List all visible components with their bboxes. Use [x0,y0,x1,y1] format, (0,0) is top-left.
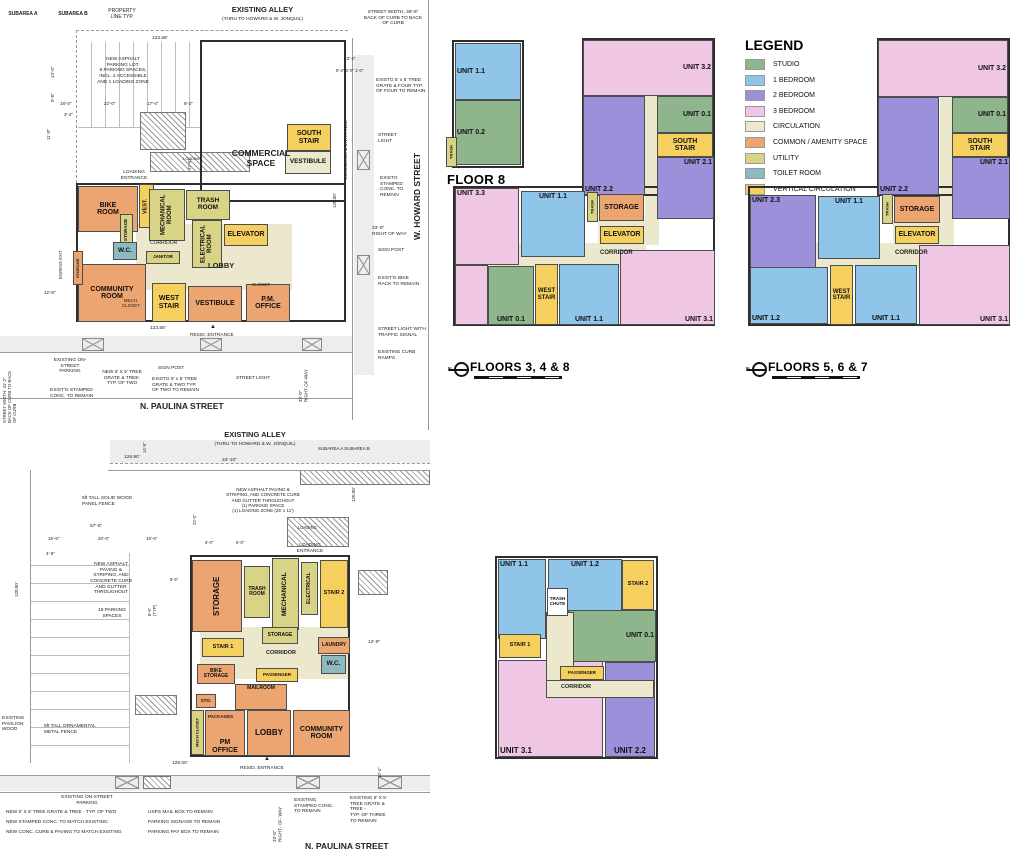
room-unit-0.1: UNIT 0.1 [952,97,1008,133]
note-existing-stamped-conc.-to-remain: EXISTING STAMPED CONC. TO REMAIN [294,798,346,815]
note-33-0-right-of-way: 33'-0" RIGHT OF WAY [372,226,418,237]
legend-label: COMMON / AMENITY SPACE [773,139,867,146]
note-subarea-a-subarea-b: SUBAREA A SUBAREA B [318,446,398,451]
note-area: ▲ [210,324,216,331]
room-unit-3.2: UNIT 3.2 [878,40,1008,97]
note-commercial-space: COMMERCIAL SPACE [230,148,292,168]
note-existing-5-x-5-tree-grate-tree-t: EXISTING 5' X 5' TREE GRATE & TREE - TYP… [350,796,402,824]
room-bike-storage: BIKE STORAGE [197,664,235,684]
room-unit-1.1: UNIT 1.1 [455,43,521,100]
note-17-6: 17'-6" [188,150,193,170]
room-janitor: JANITOR [146,251,180,264]
site-plan-south-hatch [358,570,388,595]
site-plan-north-tree [82,338,104,351]
legend-label: STUDIO [773,61,799,68]
legend-label: TOILET ROOM [773,170,821,177]
note-3-2: 3'-2" [64,112,73,117]
legend-swatch-icon [745,75,765,86]
room-elevator: ELEVATOR [600,226,644,244]
room-south-stair: SOUTH STAIR [287,124,331,151]
room-lobby: LOBBY [247,710,291,756]
note-existg-5-x-5-tree-grate-four-typ: EXISTG 5' x 5' TREE GRATE & FOUR TYP. OF… [376,78,436,95]
site-plan-north-outline [200,40,346,202]
legend-label: 2 BEDROOM [773,92,815,99]
note-new-5-x-5-tree-grate-tree-typ.-o: NEW 5' X 5' TREE GRATE & TREE - TYP. OF … [6,810,134,816]
room-vestibule: VESTIBULE [188,286,242,322]
room-elevator: ELEVATOR [895,226,939,244]
room-trash-room: TRASH ROOM [186,190,230,220]
site-plan-south-tree [115,776,139,789]
plan-title-floor-8-partial: FLOOR 8 [447,172,505,187]
site-plan-north-tree [357,255,370,275]
note-subarea-a: SUBAREA A [2,12,44,18]
note-existing-alley: EXISTING ALLEY [200,431,310,440]
room-w.c.: W.C. [113,242,137,260]
site-plan-north-tree [200,338,222,351]
note-12-8: 12'-8" [44,290,55,295]
legend-label: 3 BEDROOM [773,108,815,115]
note-corridor: CORRIDOR [150,241,177,247]
note-9-0: 9'-0" [50,86,55,102]
note-20-0: 20'-0" [98,536,109,541]
note-existing-on-street-parking: EXISTING ON- STREET PARKING [48,358,92,375]
note-property-line-typ.: PROPERTY LINE TYP. [100,9,144,21]
room-w.c.: W.C. [321,655,346,674]
room-unit-1.1: UNIT 1.1 [498,559,546,639]
room-trash-room: TRASH ROOM [244,566,270,618]
note-thru-to-howard-w.-jonquil: (THRU TO HOWARD & W. JONQUIL) [190,442,320,448]
note-57-5: 57'-5" [90,524,102,530]
note-128.00: 128.00' [172,761,188,767]
note-4-5: 4'-5" [46,551,55,556]
room-storage: STORAGE [192,560,242,632]
note-n.-paulina-street: N. PAULINA STREET [305,841,425,851]
room-unit-2.2: UNIT 2.2 [605,662,655,757]
legend-label: 1 BEDROOM [773,77,815,84]
legend-swatch-icon [745,168,765,179]
room-stair-2: STAIR 2 [320,560,348,628]
legend-swatch-icon [745,137,765,148]
note-13-4: 13'-4" [344,56,355,61]
room-stair-1: STAIR 1 [499,634,541,658]
note-17-0: 17'-0" [147,101,158,106]
room-mechanical: MECHANICAL [272,558,299,630]
legend-label: CIRCULATION [773,123,820,130]
note-existing-alley: EXISTING ALLEY [210,6,315,15]
note-existing-on-street-parking: EXISTING ON-STREET PARKING [52,795,122,806]
note-new-asphalt-paving-striping-and-: NEW ASPHALT PAVING & STRIPING, AND CONCR… [222,487,304,513]
note-egress-exit: EGRESS EXIT [58,243,63,279]
site-plan-north-tree [357,150,370,170]
note-corridor: CORRIDOR [600,250,633,257]
note-12-4: 12'-4" [378,758,383,778]
site-plan-north-line [76,30,348,31]
note-sign-post: SIGN POST [158,366,184,372]
note-6-4-6-0-1-0: 6'-4" 6'-0" 1'-0" [336,69,394,74]
site-plan-north-hatch [140,112,186,150]
note-16-6: 16'-6" [146,536,157,541]
room-trash: TRASH [446,137,457,167]
room-unit-2.1: UNIT 2.1 [952,157,1010,219]
room-unit-1.2: UNIT 1.2 [750,267,828,324]
note-new-stamped-conc.-to-match-exist: NEW STAMPED CONC. TO MATCH EXISTING [6,820,128,826]
room-unit-0.1: UNIT 0.1 [657,96,713,133]
site-plan-north-fill [0,336,352,352]
room-unit-0.1: UNIT 0.1 [488,266,534,325]
room-west-stair: WEST STAIR [535,264,558,325]
note-parking-signage-to-remain: PARKING SIGNAGE TO REMAIN [148,820,240,826]
room-south-stair: SOUTH STAIR [657,133,713,157]
room-mechanical-room: MECHANICAL ROOM [149,189,185,241]
note-loading: LOADING [298,526,317,531]
note-mech.-closet: MECH. CLOSET [116,298,146,309]
note-n.-paulina-street: N. PAULINA STREET [140,401,258,411]
plan-title-floors-3-4-8: FLOORS 3, 4 & 8 [470,360,570,374]
room-unit-1.1: UNIT 1.1 [559,264,619,325]
note-120.00: 120.00' [332,186,337,208]
site-plan-south-tree [296,776,320,789]
site-plan-south-hatch [135,695,177,715]
note-33-0-right-of-way: 33'-0" RIGHT- OF- WAY [272,800,283,842]
note-6ft-tall-solid-wood-panel-fence: 6ft TALL SOLID WOOD PANEL FENCE [82,496,148,507]
note-exist-g-bike-rack-to-remain: EXIST'G BIKE RACK TO REMAIN [378,276,426,287]
site-plan-south-line [110,463,430,464]
room-unit-3.2: UNIT 3.2 [583,40,713,96]
room-unit-1.1: UNIT 1.1 [818,196,880,259]
room-storage: STORAGE [894,196,940,223]
room-stair-1: STAIR 1 [202,638,244,657]
floors-5-6-7-scalebar [772,376,860,379]
site-plan-south-line [0,775,430,776]
architectural-sheet: LEGEND STUDIO1 BEDROOM2 BEDROOM3 BEDROOM… [0,0,1024,859]
room-laundry: LAUNDRY [318,637,350,654]
site-plan-south-line [0,792,430,793]
legend-swatch-icon [745,59,765,70]
note-19-parking-spaces: 19 PARKING SPACES [92,608,132,619]
room-unit-3.1: UNIT 3.1 [620,250,715,325]
floors-3-4-8-scalebar [474,376,562,379]
site-plan-north-fill [354,55,374,375]
room-storage: STORAGE [73,251,83,285]
room-trash: TRASH [882,194,893,224]
note-loading-entrance: LOADING ENTRANCE [116,170,152,181]
room-electrical: ELECTRICAL [301,562,318,615]
note-existing-pavilion-wood: EXISTING PAVILION WOOD [2,716,34,733]
room-unit-1.1: UNIT 1.1 [855,265,917,324]
north-circle-icon [454,362,469,377]
site-plan-north-line [352,38,353,420]
room-west-stair: WEST STAIR [152,283,186,322]
room-trash-chute: TRASH CHUTE [547,588,568,616]
note-existg-stamped-conc.-to-remain: EXISTG STAMPED CONC. TO REMAIN [380,176,416,199]
note-existing-curb-ramps: EXISTING CURB RAMPS [378,350,426,361]
room-sto.: STO. [196,694,216,708]
room-south-stair: SOUTH STAIR [952,133,1008,157]
room-unit-0.1: UNIT 0.1 [568,610,656,662]
note-w.-howard-street: W. HOWARD STREET [412,90,422,240]
room-passenger: PASSENGER [560,666,604,680]
room-storage: STORAGE [120,214,133,245]
room-elevator: ELEVATOR [224,224,268,246]
site-plan-south-line [108,470,430,471]
room-unit-1.1: UNIT 1.1 [521,191,585,257]
site-plan-north-line [76,30,77,183]
note-123.55: 123.55' [150,326,166,332]
note-11-0: 11'-0" [46,120,51,140]
note-resid.-entrance: RESID. ENTRANCE [190,333,248,339]
note-8-5: 8'-5" [170,578,178,583]
note-8-6-typ: 8'-6" (TYP) [148,592,158,616]
note-120.00: 120.00' [14,575,19,597]
site-plan-south-hatch [300,470,430,485]
room-p.m.-office: P.M. OFFICE [246,284,290,322]
legend-swatch-icon [745,90,765,101]
note-22-0: 22'-0" [193,505,198,525]
note-area: ▲ [264,756,270,763]
site-plan-north-tree [302,338,322,351]
room-mech-closet: MECH CLOSET [191,710,204,755]
note-thru-to-howard-w.-jonquil: (THRU TO HOWARD & W. JONQUIL) [200,17,325,23]
note-120.00: 120.00' [351,480,356,502]
note-existg-5-x-5-tree-grate-two-typ.: EXISTG 5' x 5' TREE GRATE & TWO TYP. OF … [152,377,212,394]
note-street-light: STREET LIGHT [236,376,280,382]
room-community-room: COMMUNITY ROOM [78,264,146,322]
room-unit-3.1: UNIT 3.1 [919,245,1010,325]
note-usps-mail-box-to-remain: USPS MAIL BOX TO REMAIN [148,810,236,816]
note-16-6: 16'-6" [48,536,59,541]
room-unit-2.1: UNIT 2.1 [657,157,714,219]
note-12-8: 12'-8" [368,640,380,646]
site-plan-south-fill [0,775,430,791]
site-plan-south-hatch [143,776,171,789]
note-8-2: 8'-2" [184,101,193,106]
note-18-0: 18'-0" [60,101,71,106]
room-unit-3.3: UNIT 3.3 [455,188,519,265]
site-plan-north-line [0,352,352,353]
room-stair-2: STAIR 2 [622,560,654,610]
room-area [455,265,488,325]
note-6-0: 6'-0" [236,541,244,546]
room-storage: STORAGE [262,627,298,644]
room-mailroom: MAILROOM [235,684,287,710]
note-24-10: 24'-10" [222,458,237,464]
note-new-5-x-5-tree-grate-tree-typ.-o: NEW 5' X 5' TREE GRATE & TREE- TYP. OF T… [96,370,148,387]
note-lobby: LOBBY [208,262,234,271]
note-subarea-b: SUBAREA B [50,12,96,18]
room-unit-2.2: UNIT 2.2 [583,96,645,195]
north-circle-icon [752,362,767,377]
note-6-0: 6'-0" [205,541,213,546]
note-closet: CLOSET [252,282,270,287]
room-unit-0.2: UNIT 0.2 [455,100,521,165]
room-west-stair: WEST STAIR [830,265,853,325]
note-packages: PACKAGES [208,714,233,719]
note-commercial-entrance: COMMERCIAL ENTRANCE [344,118,350,180]
note-128.90: 128.90' [124,455,140,461]
legend-swatch-icon [745,121,765,132]
room-unit-2.2: UNIT 2.2 [878,97,939,195]
note-street-light-with-traffic-signal: STREET LIGHT WITH TRAFFIC SIGNAL [378,327,436,338]
note-33-0-right-of-way: 33'-0" RIGHT-OF-WAY [298,356,309,402]
room-passenger: PASSENGER [256,668,298,682]
legend-label: UTILITY [773,155,799,162]
north-arrow-icon: N [448,362,469,377]
room-community-room: COMMUNITY ROOM [293,710,350,756]
note-street-width-41-2-back-of-curb-t: STREET WIDTH: 41'-2" BACK OF CURB TO BAC… [2,345,17,423]
note-6ft-tall-ornamental-metal-fence: 6ft TALL ORNAMENTAL METAL FENCE [44,724,114,735]
note-street-light: STREET LIGHT [378,133,408,144]
note-parking-pay-box-to-remain: PARKING PAY BOX TO REMAIN [148,830,240,836]
note-resid.-entrance: RESID. ENTRANCE [240,766,298,772]
note-14-5: 14'-5" [143,435,148,453]
note-123.58: 123.58' [152,36,168,42]
plan-title-floors-5-6-7: FLOORS 5, 6 & 7 [768,360,868,374]
site-plan-north-line [428,0,429,430]
room-trash: TRASH [587,192,598,222]
note-sign-post: SIGN POST [378,248,404,254]
note-corridor: CORRIDOR [561,684,591,690]
note-new-conc.-curb-paving-to-match-e: NEW CONC. CURB & PAVING TO MATCH EXISTIN… [6,830,138,836]
note-loading-entrance: LOADING ENTRANCE [290,543,330,554]
legend-swatch-icon [745,153,765,164]
north-arrow-icon: N [746,362,767,377]
note-new-asphalt-parking-lot.-8-parki: NEW ASPHALT PARKING LOT. 8 PARKING SPACE… [92,57,154,85]
note-street-width-39-6-back-of-curb-t: STREET WIDTH, 39'-6" BACK OF CURB TO BAC… [360,10,426,27]
note-13-0: 13'-0" [50,58,55,78]
note-corridor: CORRIDOR [895,250,928,257]
room-storage: STORAGE [599,194,644,221]
note-new-asphalt-paving-striping-and-: NEW ASPHALT PAVING & STRIPING, AND CONCR… [85,562,137,596]
note-corridor: CORRIDOR [266,650,296,656]
note-22-0: 22'-0" [104,101,115,106]
note-exist-g-stamped-conc.-to-remain: EXIST'G STAMPED CONC. TO REMAIN [50,388,108,399]
legend-swatch-icon [745,106,765,117]
